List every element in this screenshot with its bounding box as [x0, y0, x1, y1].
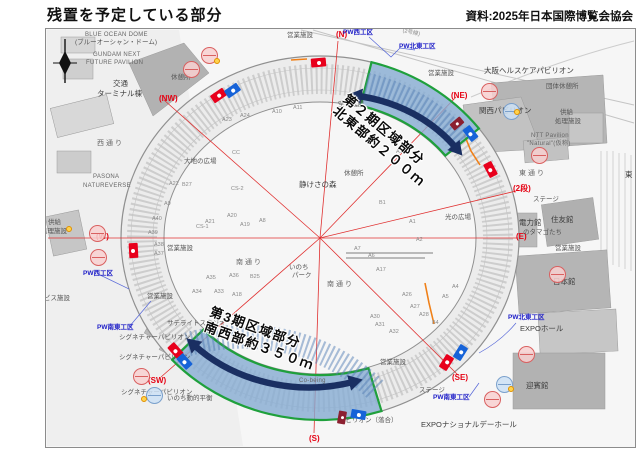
site-map: (N)(NW)(NE)(W)(E)(2段)(SW)(SE)(S)PW西工区PW北… [45, 28, 636, 448]
page: 残置を予定している部分 資料:2025年日本国際博覧会協会 [0, 0, 640, 450]
source-credit: 資料:2025年日本国際博覧会協会 [466, 8, 633, 24]
map-graphic [46, 29, 635, 447]
page-title: 残置を予定している部分 [47, 4, 223, 25]
